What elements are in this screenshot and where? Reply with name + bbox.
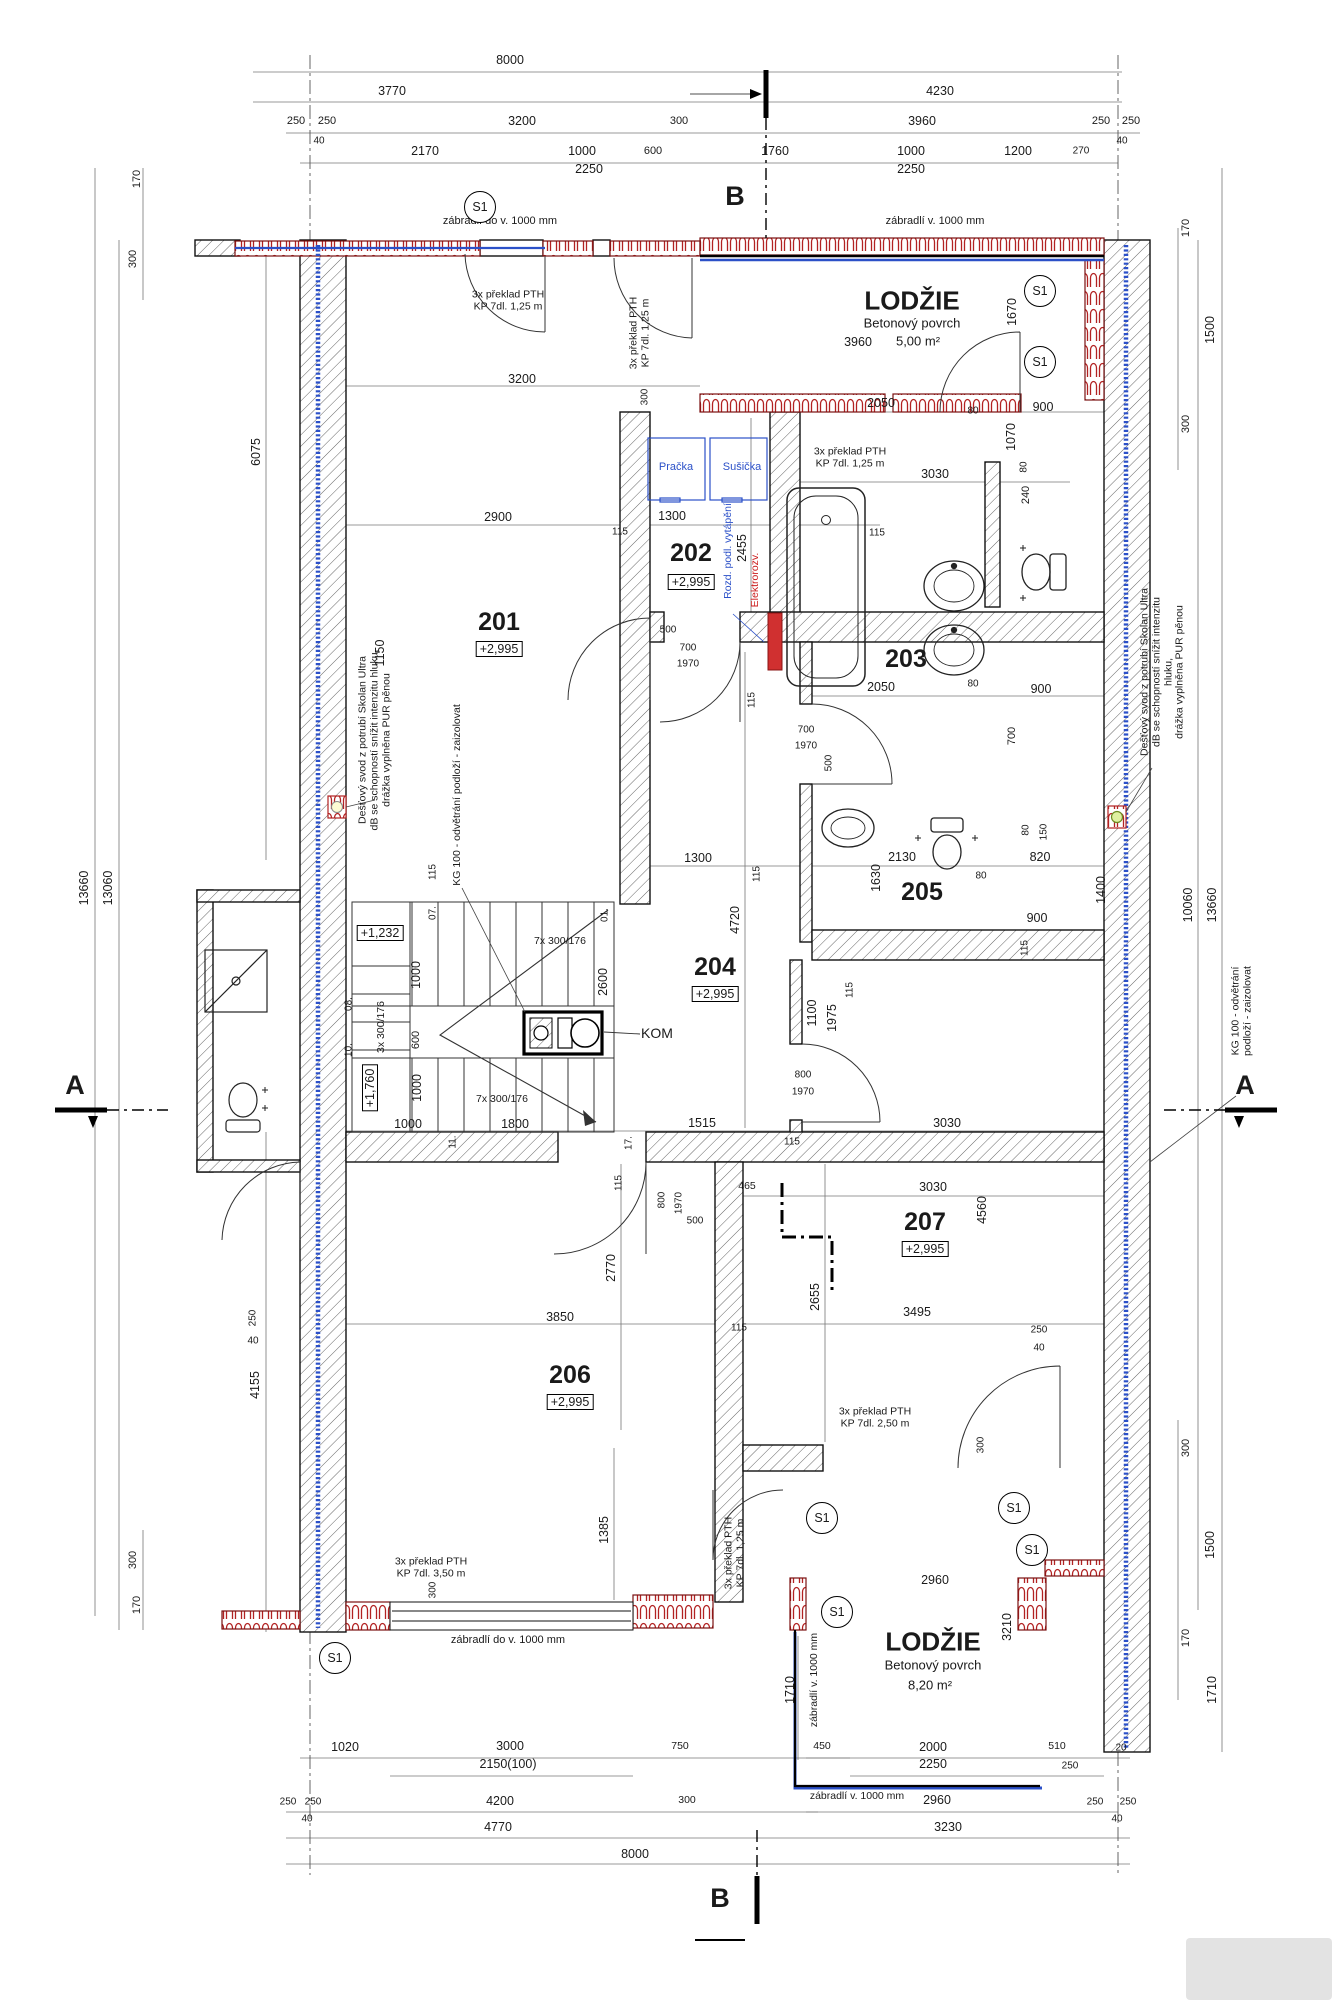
- dimension-label: 250: [305, 1796, 322, 1807]
- dimension-label: 4720: [728, 906, 742, 934]
- dimension-label: 1710: [1205, 1676, 1219, 1704]
- dimension-label: 1400: [1094, 876, 1108, 904]
- dimension-label: 170: [1180, 1629, 1192, 1647]
- pipe-note: Dešťový svod z potrubí Skolan Ultra dB s…: [357, 650, 392, 831]
- dimension-label: 1760: [761, 144, 789, 158]
- dimension-label: 600: [644, 145, 662, 157]
- dimension-label: 250: [1120, 1796, 1137, 1807]
- dimension-label: 1630: [869, 864, 883, 892]
- dimension-label: 1710: [783, 1676, 797, 1704]
- dimension-label: 40: [1116, 135, 1127, 146]
- dimension-label: 80: [967, 678, 978, 689]
- dimension-label: 300: [127, 250, 139, 268]
- dimension-label: 1100: [805, 1000, 819, 1027]
- dimension-label: 1385: [597, 1516, 611, 1544]
- dimension-label: 1800: [501, 1117, 529, 1131]
- dimension-label: 800: [795, 1069, 812, 1080]
- dimension-label: 1000: [897, 144, 925, 158]
- dimension-label: 3030: [919, 1180, 947, 1194]
- lintel-note: 3x překlad PTH KP 7dl. 2,50 m: [839, 1406, 911, 1430]
- dimension-label: 2130: [888, 850, 916, 864]
- step-number: 01.: [599, 908, 610, 922]
- dimension-label: 300: [639, 389, 650, 406]
- dimension-label: 40: [301, 1813, 312, 1824]
- floor-plan-canvas: 8000377042302502504032003003960250250402…: [0, 0, 1332, 2000]
- dimension-label: 3000: [496, 1739, 524, 1753]
- dimension-label: 115: [784, 1136, 800, 1147]
- dimension-label: 3200: [508, 372, 536, 386]
- detail-marker: S1: [1016, 1534, 1048, 1566]
- dimension-label: 900: [1027, 911, 1048, 925]
- dimension-label: 4230: [926, 84, 954, 98]
- dimension-label: 150: [1038, 824, 1049, 841]
- dimension-label: 80: [1020, 824, 1031, 835]
- dimension-label: 820: [1030, 850, 1051, 864]
- dimension-label: 1970: [795, 740, 817, 751]
- stair-note: 3x 300/176: [376, 1001, 388, 1053]
- dimension-label: 1500: [1203, 1531, 1217, 1559]
- level-label: +2,995: [692, 986, 739, 1002]
- room-label: LODŽIE: [885, 1627, 980, 1656]
- step-number: 07.: [427, 906, 438, 920]
- dimension-label: 3030: [933, 1116, 961, 1130]
- dimension-label: 115: [1019, 940, 1030, 956]
- dimension-label: 3210: [1000, 1613, 1014, 1641]
- dimension-label: 80: [967, 405, 978, 416]
- dimension-label: 2900: [484, 510, 512, 524]
- dimension-label: 250: [280, 1796, 297, 1807]
- dimension-label: 300: [127, 1551, 139, 1569]
- appliance-label: Sušička: [723, 461, 762, 473]
- dimension-label: 3850: [546, 1310, 574, 1324]
- dimension-label: 1970: [673, 1192, 684, 1214]
- dimension-label: 1300: [658, 509, 686, 523]
- section-marker-a: A: [65, 1070, 85, 1100]
- chimney-label: KOM: [641, 1026, 673, 1042]
- dimension-label: 115: [731, 1322, 747, 1333]
- dimension-label: 80: [975, 870, 986, 881]
- dimension-label: 40: [1033, 1342, 1044, 1353]
- dimension-label: 500: [687, 1215, 704, 1226]
- dimension-label: 1970: [792, 1086, 814, 1097]
- dimension-label: 4155: [248, 1371, 262, 1399]
- dimension-label: 3960: [908, 114, 936, 128]
- dimension-label: 250: [1087, 1796, 1104, 1807]
- railing-note: zábradlí v. 1000 mm: [886, 215, 985, 227]
- level-label: +2,995: [476, 641, 523, 657]
- step-number: 08.: [343, 997, 354, 1011]
- dimension-label: 300: [678, 1795, 696, 1807]
- dimension-label: 1000: [568, 144, 596, 158]
- dimension-label: 600: [410, 1031, 422, 1049]
- dimension-label: 2960: [921, 1573, 949, 1587]
- railing-note: zábradlí v. 1000 mm: [809, 1633, 821, 1727]
- dimension-label: 3230: [934, 1820, 962, 1834]
- dimension-label: 700: [680, 642, 697, 653]
- dimension-label: 450: [813, 1741, 831, 1753]
- dimension-label: 170: [131, 170, 143, 188]
- dimension-label: 300: [427, 1582, 438, 1599]
- dimension-label: 115: [427, 864, 438, 880]
- dimension-label: 2600: [596, 968, 610, 996]
- dimension-label: 115: [612, 526, 628, 537]
- annotation-layer: 8000377042302502504032003003960250250402…: [0, 0, 1332, 2000]
- detail-marker: S1: [464, 191, 496, 223]
- detail-marker: S1: [319, 1642, 351, 1674]
- dimension-label: 40: [247, 1335, 258, 1346]
- dimension-label: 300: [1180, 415, 1192, 433]
- dimension-label: 13660: [77, 871, 91, 906]
- dimension-label: 250: [247, 1310, 258, 1327]
- dimension-label: 40: [313, 135, 324, 146]
- step-number: 10.: [343, 1043, 354, 1057]
- detail-marker: S1: [806, 1502, 838, 1534]
- dimension-label: 1150: [373, 640, 387, 667]
- dimension-label: 4560: [975, 1196, 989, 1224]
- detail-marker: S1: [1024, 346, 1056, 378]
- dimension-label: 2770: [604, 1254, 618, 1282]
- appliance-label: Pračka: [659, 461, 693, 473]
- pipe-note: KG 100 - odvětrání podloží - zaizolovat: [452, 704, 464, 886]
- dimension-label: 465: [738, 1181, 756, 1193]
- stair-note: 7x 300/176: [476, 1094, 528, 1106]
- section-marker-b: B: [710, 1883, 730, 1913]
- dimension-label: 700: [1006, 727, 1018, 745]
- section-marker-a: A: [1235, 1070, 1255, 1100]
- dimension-label: 2050: [867, 396, 895, 410]
- dimension-label: 1070: [1004, 423, 1018, 451]
- dimension-label: 1000: [410, 1074, 424, 1102]
- dimension-label: 1515: [688, 1116, 716, 1130]
- level-label: +2,995: [547, 1394, 594, 1410]
- dimension-label: 800: [656, 1192, 667, 1209]
- dimension-label: 115: [869, 527, 885, 538]
- dimension-label: 13660: [1205, 888, 1219, 923]
- level-label: +2,995: [902, 1241, 949, 1257]
- room-label: LODŽIE: [864, 286, 959, 315]
- dimension-label: 2455: [735, 534, 749, 562]
- room-sublabel: Betonový povrch: [864, 317, 961, 332]
- room-label: 205: [901, 878, 943, 906]
- dimension-label: 115: [746, 692, 757, 708]
- dimension-label: 500: [660, 624, 677, 635]
- dimension-label: 1970: [677, 658, 699, 669]
- dimension-label: 510: [1048, 1741, 1066, 1753]
- dimension-label: 2050: [867, 680, 895, 694]
- dimension-label: 2150(100): [480, 1757, 537, 1771]
- dimension-label: 8000: [496, 53, 524, 67]
- pipe-note: Dešťový svod z potrubí Skolan Ultra dB s…: [1140, 588, 1187, 757]
- dimension-label: 1300: [684, 851, 712, 865]
- dimension-label: 1000: [409, 961, 423, 989]
- detail-marker: S1: [821, 1596, 853, 1628]
- dimension-label: 270: [1073, 145, 1090, 156]
- dimension-label: 1200: [1004, 144, 1032, 158]
- room-area: 8,20 m²: [908, 1679, 952, 1694]
- dimension-label: 115: [844, 982, 855, 998]
- step-number: 17.: [623, 1136, 634, 1150]
- dimension-label: 900: [1033, 400, 1054, 414]
- level-label: +2,995: [668, 574, 715, 590]
- room-label: 206: [549, 1361, 591, 1389]
- dimension-label: 250: [1031, 1324, 1048, 1335]
- dimension-label: 750: [671, 1741, 689, 1753]
- watermark: [1186, 1938, 1332, 2000]
- room-label: 204: [694, 953, 736, 981]
- lintel-note: 3x překlad PTH KP 7dl. 1,25 m: [723, 1517, 747, 1589]
- dimension-label: 13060: [101, 871, 115, 906]
- railing-note: zábradlí do v. 1000 mm: [451, 1634, 565, 1646]
- dimension-label: 3495: [903, 1305, 931, 1319]
- dimension-label: 3200: [508, 114, 536, 128]
- dimension-label: 250: [318, 115, 336, 127]
- dimension-label: 240: [1020, 486, 1032, 504]
- dimension-label: 1670: [1005, 298, 1019, 326]
- lintel-note: 3x překlad PTH KP 7dl. 3,50 m: [395, 1556, 467, 1580]
- detail-marker: S1: [1024, 275, 1056, 307]
- dimension-label: 300: [1180, 1439, 1192, 1457]
- dimension-label: 4770: [484, 1820, 512, 1834]
- room-sublabel: Betonový povrch: [885, 1659, 982, 1674]
- dimension-label: 2960: [923, 1793, 951, 1807]
- dimension-label: 80: [1018, 461, 1029, 472]
- dimension-label: 2170: [411, 144, 439, 158]
- room-label: 202: [670, 539, 712, 567]
- dimension-label: 2250: [575, 162, 603, 176]
- dimension-label: 300: [670, 115, 688, 127]
- room-label: 207: [904, 1208, 946, 1236]
- dimension-label: 500: [823, 755, 834, 772]
- detail-marker: S1: [998, 1492, 1030, 1524]
- dimension-label: 20: [1115, 1742, 1126, 1753]
- dimension-label: 300: [975, 1437, 986, 1454]
- dimension-label: 1500: [1203, 316, 1217, 344]
- dimension-label: 2250: [897, 162, 925, 176]
- dimension-label: 1000: [394, 1117, 422, 1131]
- stair-note: 7x 300/176: [534, 936, 586, 948]
- dimension-label: 1020: [331, 1740, 359, 1754]
- railing-note: zábradlí do v. 1000 mm: [443, 215, 557, 227]
- room-label: 203: [885, 645, 927, 673]
- dimension-label: 170: [131, 1596, 143, 1614]
- dimension-label: 10060: [1181, 888, 1195, 923]
- dimension-label: 900: [1031, 682, 1052, 696]
- dimension-label: 115: [613, 1175, 624, 1191]
- dimension-label: 250: [287, 115, 305, 127]
- lintel-note: 3x překlad PTH KP 7dl. 1,25 m: [628, 297, 652, 369]
- dimension-label: 170: [1180, 219, 1192, 237]
- dimension-label: 6075: [249, 438, 263, 466]
- level-label: +1,232: [357, 925, 404, 941]
- dimension-label: 250: [1092, 115, 1110, 127]
- installation-note: Rozd. podl. vytápění: [723, 503, 735, 599]
- dimension-label: 2655: [808, 1283, 822, 1311]
- dimension-label: 40: [1111, 1813, 1122, 1824]
- room-area: 5,00 m²: [896, 335, 940, 350]
- pipe-note: KG 100 - odvětrání podloží - zaizolovat: [1230, 966, 1254, 1056]
- dimension-label: 250: [1062, 1760, 1079, 1771]
- dimension-label: 3030: [921, 467, 949, 481]
- lintel-note: 3x překlad PTH KP 7dl. 1,25 m: [814, 446, 886, 470]
- step-number: 11.: [447, 1135, 458, 1148]
- dimension-label: 4200: [486, 1794, 514, 1808]
- dimension-label: 1975: [825, 1004, 839, 1032]
- dimension-label: 2250: [919, 1757, 947, 1771]
- section-marker-b: B: [725, 181, 745, 211]
- installation-note: Elektrorozv.: [750, 553, 762, 608]
- room-label: 201: [478, 608, 520, 636]
- dimension-label: 250: [1122, 115, 1140, 127]
- dimension-label: 2000: [919, 1740, 947, 1754]
- dimension-label: 3960: [844, 335, 872, 349]
- dimension-label: 8000: [621, 1847, 649, 1861]
- dimension-label: 3770: [378, 84, 406, 98]
- dimension-label: 700: [798, 724, 815, 735]
- dimension-label: 115: [751, 866, 762, 882]
- level-label: +1,760: [362, 1065, 378, 1112]
- lintel-note: 3x překlad PTH KP 7dl. 1,25 m: [472, 289, 544, 313]
- railing-note: zábradlí v. 1000 mm: [810, 1791, 904, 1803]
